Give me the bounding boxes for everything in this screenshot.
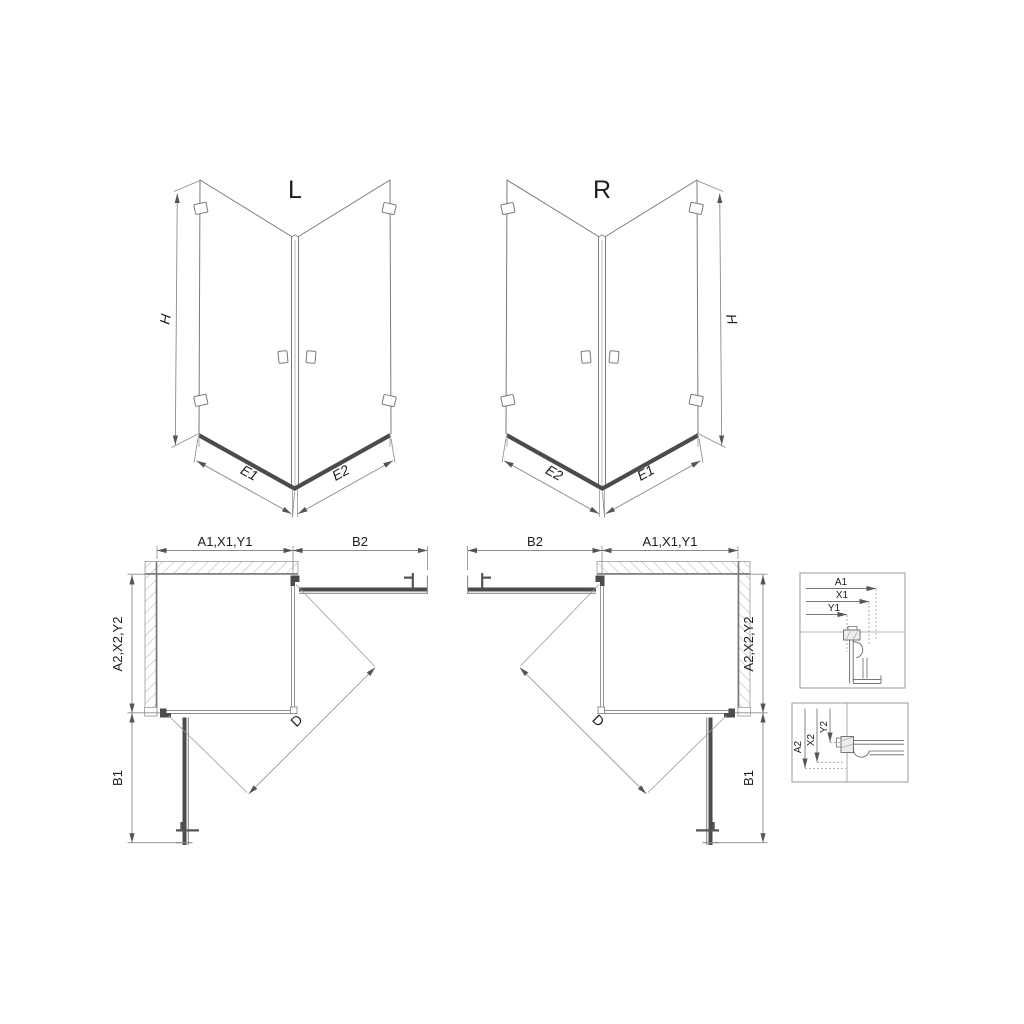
closed-door-lines — [166, 581, 295, 714]
corner-apex-cap — [292, 235, 299, 237]
detail-box-horizontal — [800, 573, 905, 688]
plan-left-door-top-label: B2 — [352, 534, 368, 549]
plan-right-depth-label: A2,X2,Y2 — [741, 617, 756, 672]
detail-y2-label: Y2 — [819, 720, 830, 733]
wall-top — [145, 562, 298, 574]
plan-left-diagonal-label: D — [287, 711, 305, 729]
wall-end-cap — [145, 708, 157, 717]
hinge-icon — [194, 202, 208, 214]
wall-left — [145, 574, 157, 717]
detail-a2-label: A2 — [793, 740, 804, 753]
handle-icon — [278, 351, 288, 364]
plan-right-diagonal-label: D — [589, 711, 607, 729]
dimension-line-height — [175, 194, 177, 446]
hinge-icon — [382, 202, 396, 214]
variant-label-right: R — [593, 176, 611, 204]
dimension-line-diagonal — [249, 668, 375, 794]
plan-right-width-label: A1,X1,Y1 — [643, 534, 698, 549]
wall-inner-faces — [145, 562, 298, 717]
detail-x2-label: X2 — [806, 733, 817, 746]
height-label-left: H — [156, 312, 174, 326]
height-label-right: H — [723, 313, 741, 327]
plan-left-width-label: A1,X1,Y1 — [198, 534, 253, 549]
variant-label-left: L — [288, 176, 302, 204]
iso-view-right — [501, 180, 726, 518]
plan-right-door-top-label: B2 — [527, 534, 543, 549]
technical-drawing-page: L R H H E1 E2 E2 E1 A1,X1,Y1 B2 A2,X2,Y2… — [0, 0, 1024, 1024]
hinge-icon — [194, 394, 208, 406]
pivot-hinge-top — [291, 576, 300, 587]
plan-right-door-side-label: B1 — [741, 770, 756, 786]
detail-y1-label: Y1 — [828, 603, 841, 614]
detail-x1-label: X1 — [836, 590, 849, 601]
handle-icons — [278, 351, 316, 364]
open-door-side-handle — [176, 822, 199, 830]
plan-left-depth-label: A2,X2,Y2 — [110, 617, 125, 672]
detail-a1-label: A1 — [835, 577, 848, 588]
iso-view-left — [172, 180, 397, 518]
plan-view-right — [468, 546, 768, 845]
technical-drawing: L R H H E1 E2 E2 E1 A1,X1,Y1 B2 A2,X2,Y2… — [0, 0, 1024, 1024]
plan-left-door-side-label: B1 — [110, 770, 125, 786]
hinge-icon — [382, 394, 396, 406]
plan-view-left — [128, 546, 428, 845]
handle-icon — [306, 351, 316, 364]
door-swing-lines — [169, 585, 375, 793]
open-door-top-handle — [404, 573, 413, 589]
